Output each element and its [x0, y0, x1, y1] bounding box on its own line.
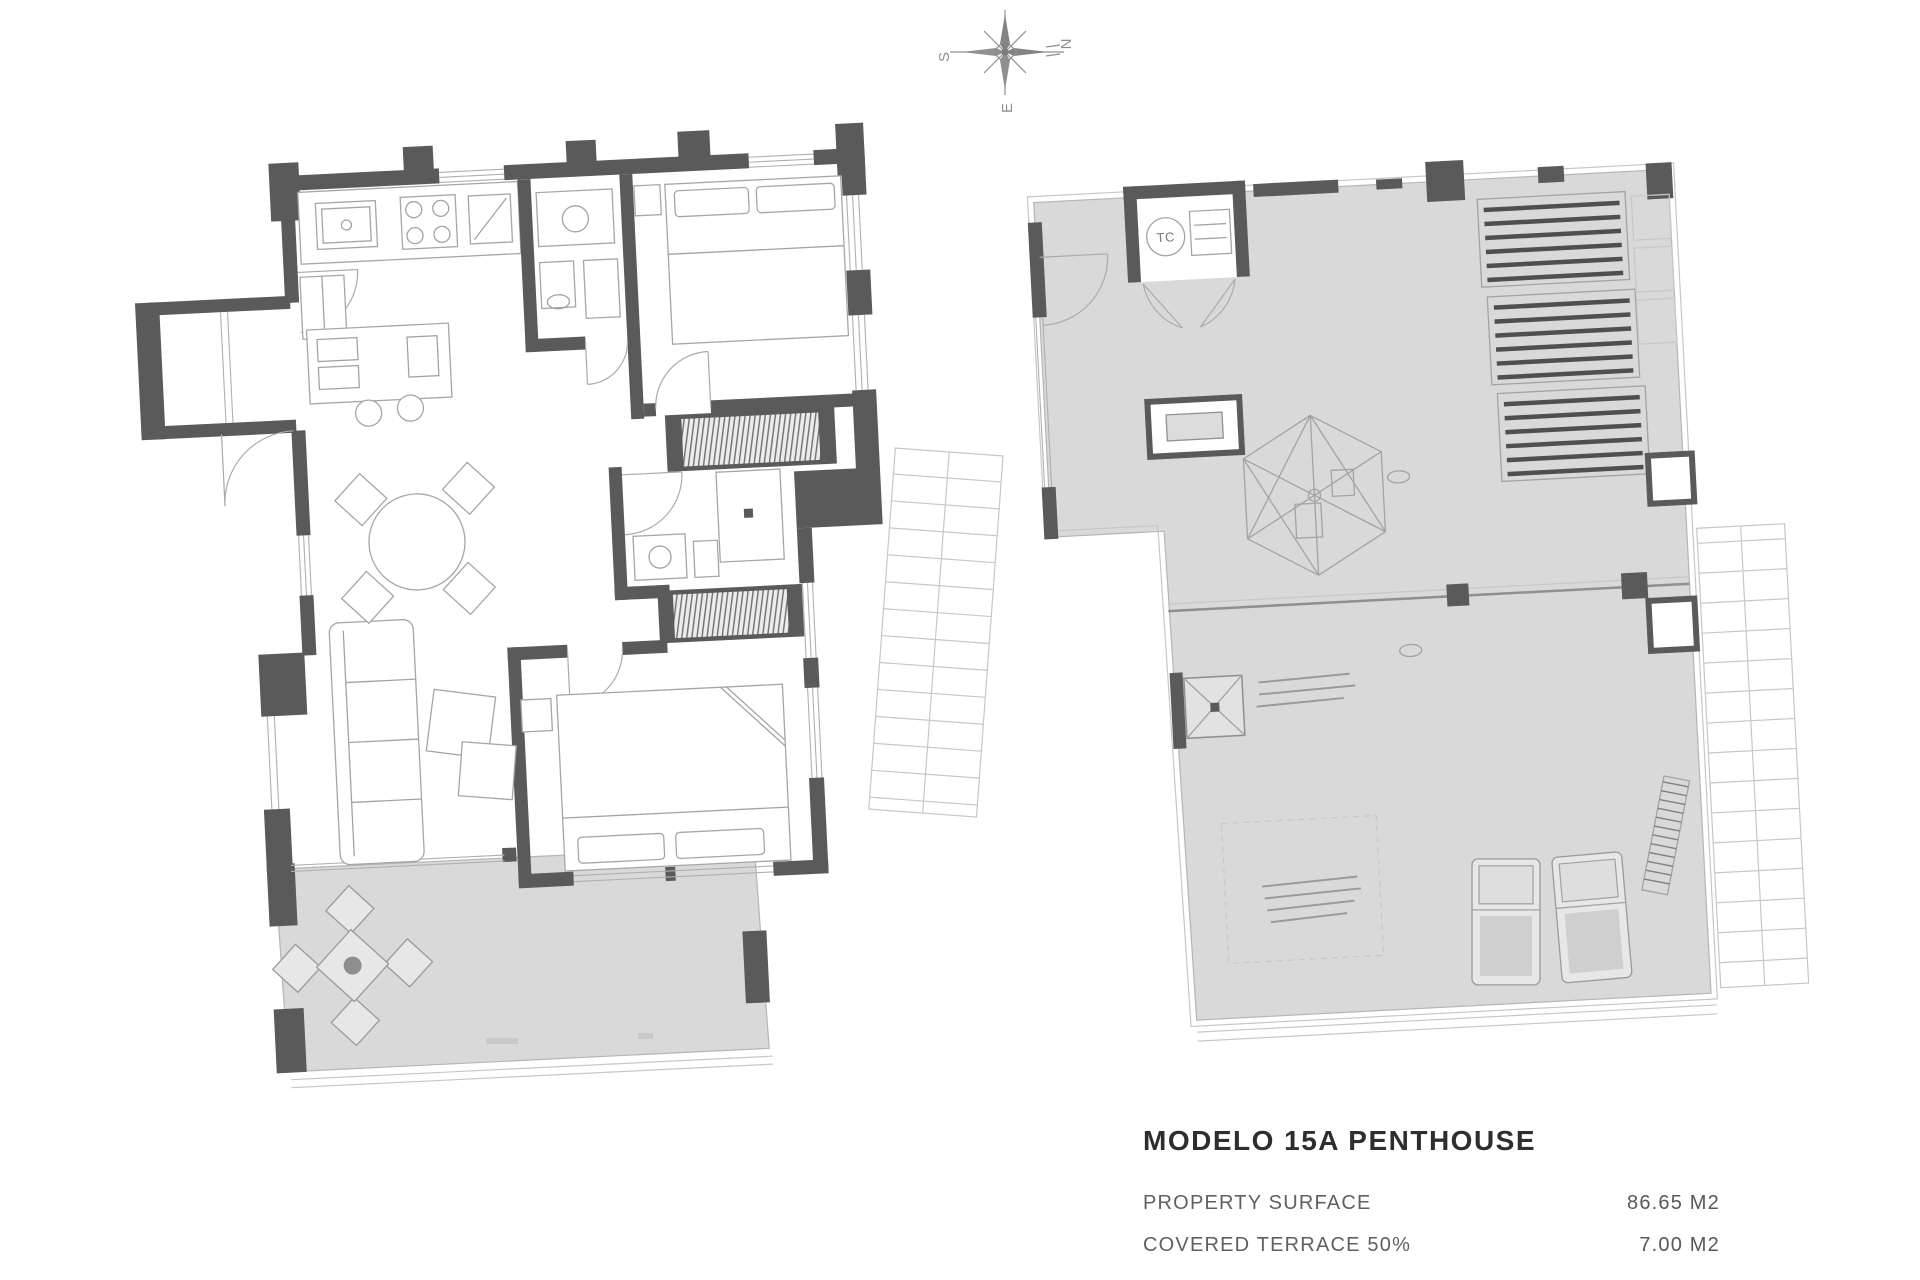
compass-label-north: N	[1058, 39, 1075, 50]
entry-door-arc	[222, 431, 297, 506]
compass-south-point	[1000, 52, 1010, 90]
compass-label-east: E	[999, 103, 1016, 113]
pillow	[756, 183, 835, 213]
compass-north-point	[1000, 14, 1010, 52]
entry-vestibule	[135, 296, 300, 510]
spec-value-covered-terrace: 7.00 M2	[1639, 1234, 1720, 1257]
wardrobe-hatched-b	[660, 586, 802, 641]
sofa	[329, 619, 425, 865]
nightstand	[521, 699, 553, 732]
compass-rose: N S E	[936, 10, 1075, 113]
tc-room-label: TC	[1156, 229, 1175, 245]
compass-label-south: S	[936, 52, 953, 62]
compass-west-point	[962, 48, 1005, 56]
kitchen	[294, 182, 529, 430]
planter-box	[1147, 397, 1242, 457]
tc-equipment	[1189, 209, 1231, 255]
pillow	[578, 833, 665, 863]
title-block: MODELO 15A PENTHOUSE PROPERTY SURFACE 86…	[1143, 1126, 1723, 1157]
bathroom-2	[609, 459, 786, 600]
living-dining	[321, 461, 521, 865]
apartment-floor-plan	[128, 117, 1032, 1094]
wardrobe-hatched-a	[667, 409, 834, 469]
plan-title: MODELO 15A PENTHOUSE	[1143, 1126, 1723, 1157]
floor-plan-canvas: N S E	[0, 0, 1920, 1280]
coffee-table	[458, 742, 516, 800]
spec-row: PROPERTY SURFACE 86.65 M2	[1143, 1192, 1720, 1215]
pillow	[674, 187, 749, 217]
roof-terrace-plan: TC	[1026, 144, 1810, 1048]
dining-table	[367, 492, 468, 593]
plan-sheet: N S E	[0, 0, 1920, 1280]
bathroom1-door-arc	[585, 340, 629, 384]
spec-row: COVERED TERRACE 50% 7.00 M2	[1143, 1234, 1720, 1257]
bedroom1-door-arc	[653, 351, 711, 409]
sun-lounger	[1552, 852, 1633, 984]
exterior-staircase	[869, 448, 1003, 817]
toilet-2	[693, 540, 719, 577]
toilet	[539, 261, 575, 309]
spec-label-covered-terrace: COVERED TERRACE 50%	[1143, 1234, 1411, 1257]
spec-label-property-surface: PROPERTY SURFACE	[1143, 1192, 1372, 1215]
spec-value-property-surface: 86.65 M2	[1627, 1192, 1720, 1215]
roof-hatch-box	[1648, 453, 1694, 503]
compass-east-point	[1005, 48, 1048, 56]
bedroom-1	[633, 175, 866, 417]
bathroom2-vanity	[633, 534, 687, 580]
nightstand	[634, 185, 661, 216]
island-stool	[355, 400, 382, 427]
bathroom2-door-arc	[622, 472, 685, 535]
pillow	[676, 828, 765, 858]
shower	[583, 259, 620, 319]
island-stool	[397, 394, 424, 421]
bathroom-1	[517, 174, 644, 424]
sun-lounger	[1472, 859, 1540, 985]
bedroom-2	[507, 634, 791, 887]
roof-hatch-box	[1648, 599, 1697, 651]
bathroom1-vanity	[536, 189, 615, 247]
kitchen-island	[307, 323, 452, 404]
